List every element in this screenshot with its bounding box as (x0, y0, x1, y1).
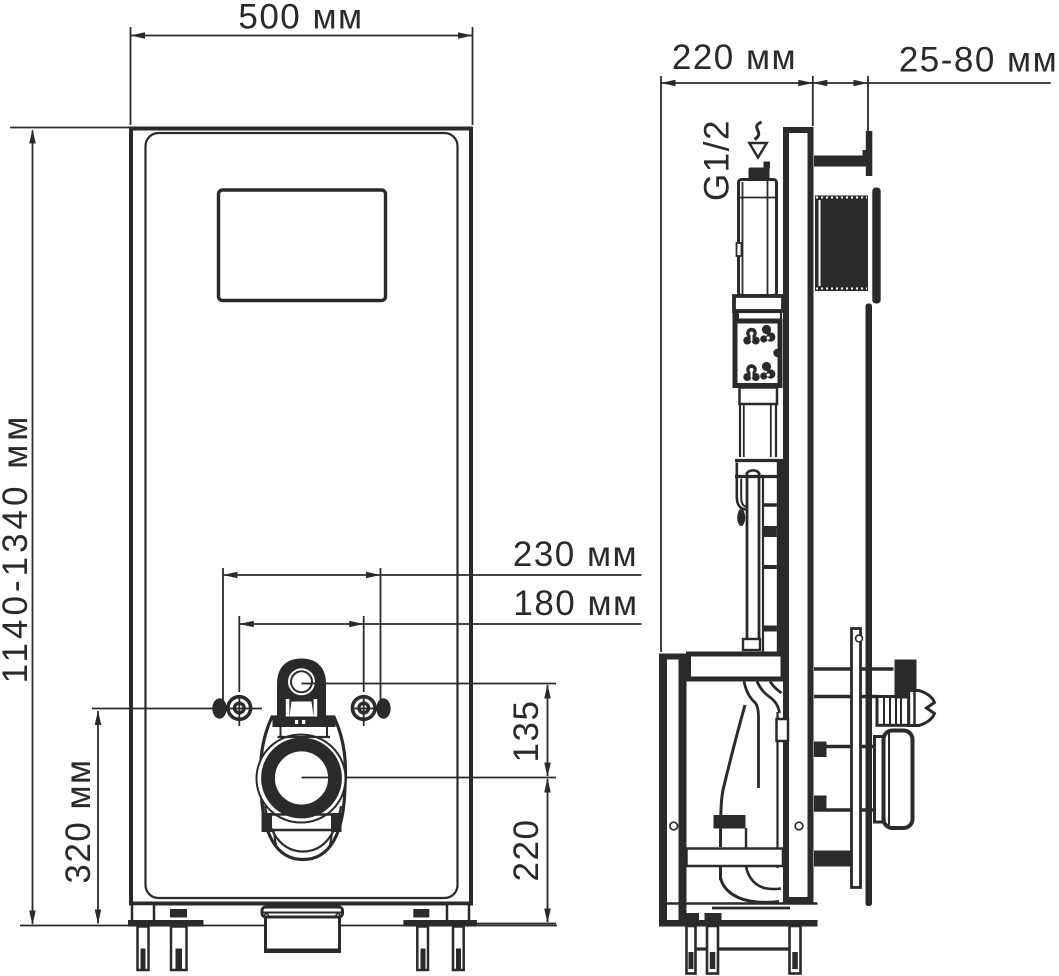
svg-text:320 мм: 320 мм (59, 758, 98, 883)
svg-text:G1/2: G1/2 (698, 119, 737, 201)
svg-text:135: 135 (507, 700, 546, 763)
svg-text:1140-1340 мм: 1140-1340 мм (0, 413, 35, 684)
svg-text:180 мм: 180 мм (513, 584, 638, 623)
svg-text:500 мм: 500 мм (238, 0, 363, 37)
svg-text:220 мм: 220 мм (672, 38, 797, 77)
svg-text:230 мм: 230 мм (513, 535, 638, 574)
svg-text:25-80 мм: 25-80 мм (899, 41, 1058, 80)
svg-text:220: 220 (507, 819, 546, 882)
